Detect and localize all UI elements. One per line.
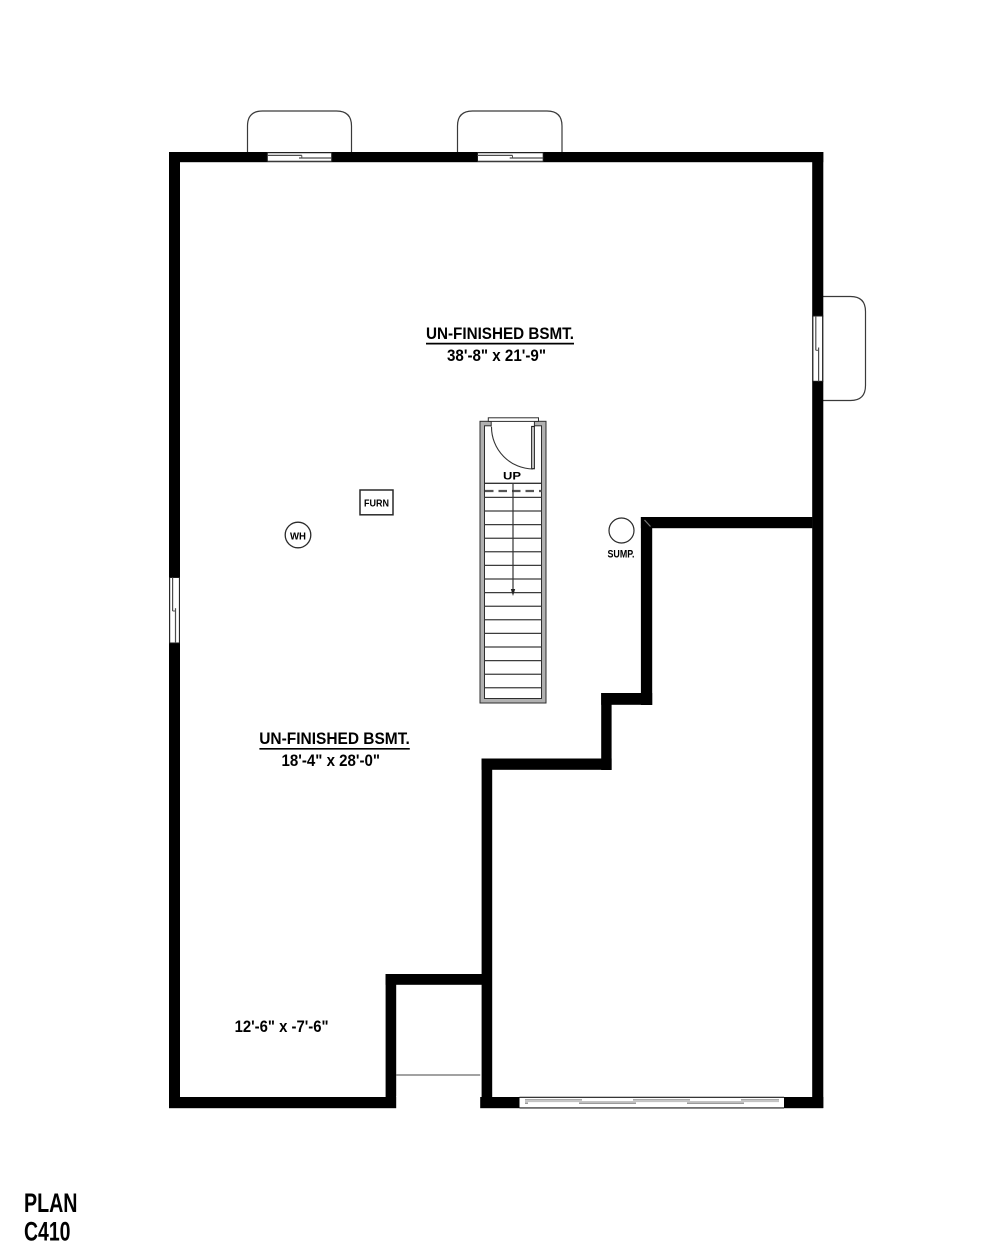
svg-text:C410: C410 bbox=[24, 1217, 71, 1247]
svg-text:SUMP.: SUMP. bbox=[608, 549, 635, 561]
svg-text:PLAN: PLAN bbox=[24, 1188, 78, 1218]
svg-text:38'-8" x 21'-9": 38'-8" x 21'-9" bbox=[447, 346, 546, 365]
svg-text:WH: WH bbox=[290, 532, 306, 543]
svg-text:UN-FINISHED BSMT.: UN-FINISHED BSMT. bbox=[426, 324, 574, 343]
svg-text:FURN: FURN bbox=[364, 498, 389, 510]
svg-text:UN-FINISHED BSMT.: UN-FINISHED BSMT. bbox=[259, 729, 410, 748]
svg-text:12'-6" x -7'-6": 12'-6" x -7'-6" bbox=[235, 1017, 329, 1036]
svg-text:UP: UP bbox=[503, 470, 521, 482]
svg-text:18'-4" x 28'-0": 18'-4" x 28'-0" bbox=[282, 751, 381, 770]
